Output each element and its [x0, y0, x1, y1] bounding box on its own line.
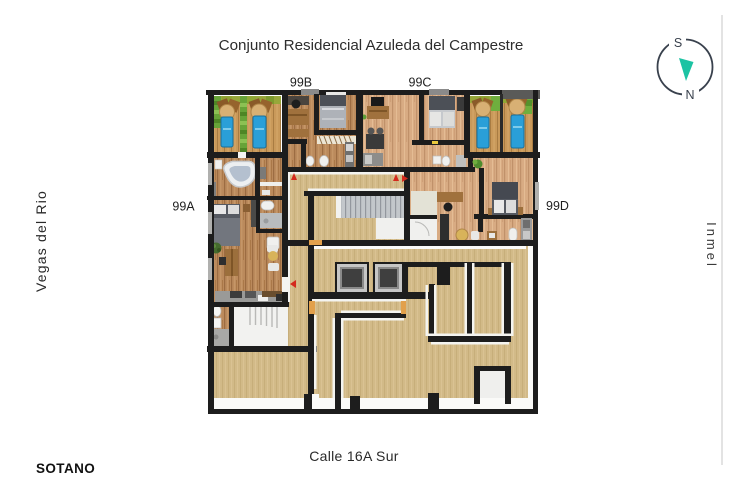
svg-text:99B: 99B: [290, 76, 312, 90]
svg-text:S: S: [674, 36, 682, 50]
svg-text:SOTANO: SOTANO: [36, 461, 95, 476]
svg-text:N: N: [685, 88, 694, 102]
svg-text:Calle 16A Sur: Calle 16A Sur: [309, 448, 399, 464]
svg-text:Vegas del Rio: Vegas del Rio: [33, 190, 49, 292]
svg-text:Conjunto Residencial Azuleda d: Conjunto Residencial Azuleda del Campest…: [219, 37, 524, 54]
svg-text:99C: 99C: [409, 76, 432, 90]
svg-text:99D: 99D: [546, 199, 569, 213]
svg-text:99A: 99A: [172, 200, 195, 214]
svg-text:Inmel: Inmel: [704, 222, 719, 269]
